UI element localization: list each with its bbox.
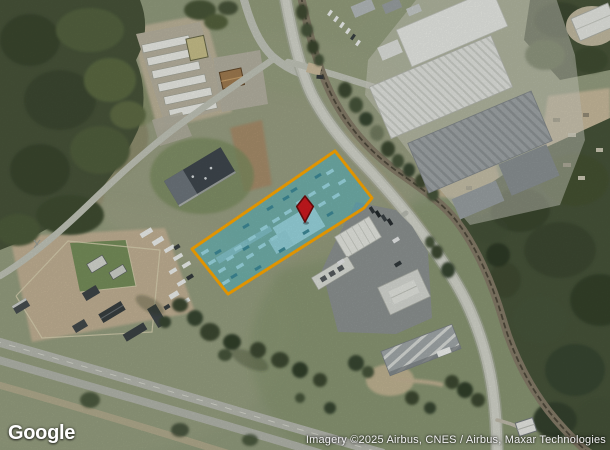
photo-grain: [0, 0, 610, 450]
imagery-attribution: Imagery ©2025 Airbus, CNES / Airbus, Max…: [306, 434, 606, 446]
satellite-map[interactable]: Google Imagery ©2025 Airbus, CNES / Airb…: [0, 0, 610, 450]
satellite-imagery: [0, 0, 610, 450]
google-logo[interactable]: Google: [8, 422, 75, 445]
